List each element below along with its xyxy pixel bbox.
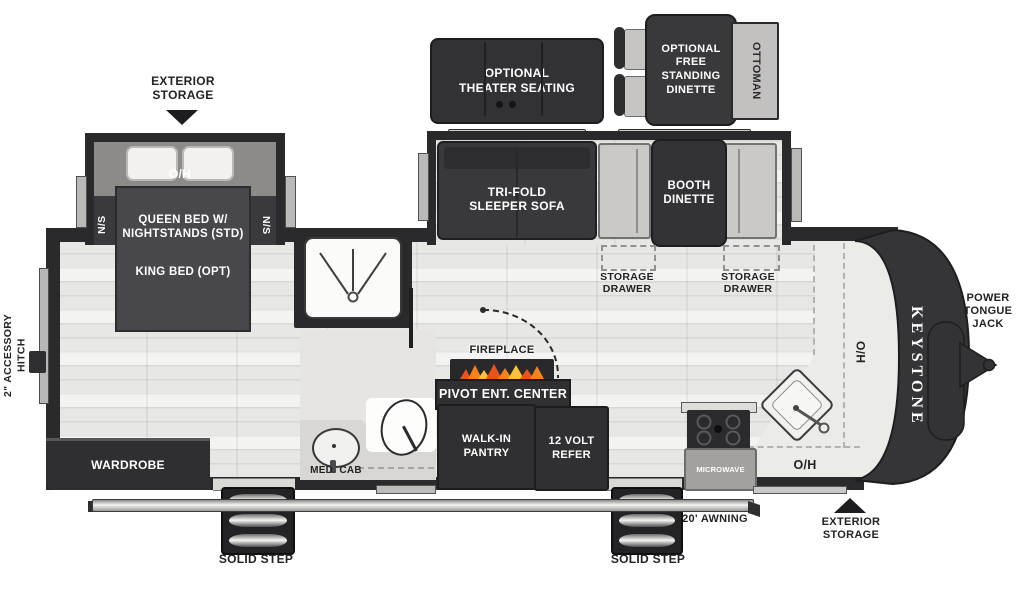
- wardrobe: WARDROBE: [46, 438, 210, 490]
- step-tread: [619, 514, 675, 527]
- bedroom-window-left: [76, 176, 87, 228]
- booth-bench-left: [598, 143, 651, 239]
- cupholder: [496, 101, 503, 108]
- bed-standard-label: QUEEN BED W/ NIGHTSTANDS (STD): [117, 214, 249, 242]
- arrow-down-icon: [166, 110, 198, 125]
- solid-step-right-label: SOLID STEP: [605, 552, 691, 566]
- baggage-door-bar: [753, 486, 847, 494]
- bed-option-label: KING BED (OPT): [117, 266, 249, 280]
- booth-dinette-table: BOOTH DINETTE: [651, 139, 727, 247]
- baggage-door-bar: [376, 485, 436, 494]
- theater-seat-seam: [484, 42, 486, 116]
- ottoman-label: OTTOMAN: [748, 42, 762, 100]
- shower-drain-icon: [306, 239, 400, 317]
- bathroom-sink-drain: [332, 444, 336, 448]
- sofa-label: TRI-FOLD SLEEPER SOFA: [439, 185, 595, 214]
- toilet-seat-line: [402, 426, 417, 452]
- power-tongue-jack-label: POWER TONGUE JACK: [954, 292, 1022, 331]
- counter-dash-line: [813, 245, 815, 355]
- theater-seat-seam: [541, 42, 543, 116]
- microwave: MICROWAVE: [684, 448, 757, 491]
- accessory-hitch-label: 2" ACCESSORY HITCH: [2, 295, 38, 415]
- step-tread: [619, 534, 675, 547]
- free-standing-dinette-label: OPTIONAL FREE STANDING DINETTE: [661, 43, 720, 98]
- nightstand-left-label: N/S: [96, 200, 114, 250]
- storage-drawer-outline-right: [723, 245, 780, 271]
- exterior-storage-front-label: EXTERIOR STORAGE: [145, 74, 221, 102]
- kitchen-overhead-label: O/H: [775, 458, 835, 473]
- sofa-slide-window: [418, 153, 429, 221]
- burner-icon: [687, 410, 750, 449]
- shower-pan: [304, 237, 402, 319]
- cupholder: [509, 101, 516, 108]
- awning-bar: [92, 499, 754, 512]
- flame-icon: [456, 361, 548, 380]
- bench-seam: [636, 149, 638, 233]
- storage-drawer-outline-left: [601, 245, 656, 271]
- bedroom-overhead-label: O/H: [150, 167, 210, 181]
- walk-in-pantry: WALK-IN PANTRY: [437, 404, 536, 490]
- range-cooktop: [687, 410, 750, 449]
- dinette-chair-back: [614, 27, 625, 69]
- dinette-slide-window: [791, 148, 802, 222]
- step-tread: [229, 534, 287, 547]
- medicine-cabinet-label: MED. CAB: [300, 465, 372, 477]
- pantry-label: WALK-IN PANTRY: [462, 433, 511, 461]
- booth-dinette-label: BOOTH DINETTE: [663, 179, 714, 208]
- dinette-chair-back: [614, 74, 625, 116]
- step-tread: [229, 514, 287, 527]
- floorplan-canvas: O/H N/S N/S QUEEN BED W/ NIGHTSTANDS (ST…: [0, 0, 1024, 591]
- ent-center-label: PIVOT ENT. CENTER: [439, 387, 567, 403]
- nightstand-right-label: N/S: [254, 200, 272, 250]
- bedroom-window-right: [285, 176, 296, 228]
- solid-step-left-label: SOLID STEP: [213, 552, 299, 566]
- bathroom-sink: [312, 428, 360, 468]
- trailer-nose: [840, 218, 1024, 498]
- theater-seating-label: OPTIONAL THEATER SEATING: [459, 66, 575, 96]
- solid-step-left: [221, 487, 295, 555]
- awning-label: 20' AWNING: [672, 513, 758, 526]
- storage-drawer-left-label: STORAGE DRAWER: [594, 271, 660, 296]
- storage-drawer-right-label: STORAGE DRAWER: [714, 271, 782, 296]
- wardrobe-label: WARDROBE: [91, 458, 165, 473]
- arrow-up-icon: [834, 498, 866, 513]
- exterior-storage-rear-label: EXTERIOR STORAGE: [806, 516, 896, 542]
- bench-seam: [738, 149, 740, 233]
- fireplace-label: FIREPLACE: [448, 344, 556, 357]
- front-storage-rail: [39, 268, 49, 404]
- tri-fold-sofa: TRI-FOLD SLEEPER SOFA: [437, 141, 597, 240]
- booth-bench-right: [724, 143, 777, 239]
- microwave-label: MICROWAVE: [696, 465, 744, 474]
- bathroom-door: [409, 288, 413, 348]
- ottoman: OTTOMAN: [731, 22, 779, 120]
- free-standing-dinette-table: OPTIONAL FREE STANDING DINETTE: [645, 14, 737, 126]
- refrigerator: 12 VOLT REFER: [534, 406, 609, 491]
- refrigerator-label: 12 VOLT REFER: [549, 435, 595, 463]
- queen-bed: QUEEN BED W/ NIGHTSTANDS (STD) KING BED …: [115, 186, 251, 332]
- brand-label: KEYSTONE: [902, 296, 926, 436]
- kitchen-faucet-icon: [788, 398, 834, 438]
- theater-seating: OPTIONAL THEATER SEATING: [430, 38, 604, 124]
